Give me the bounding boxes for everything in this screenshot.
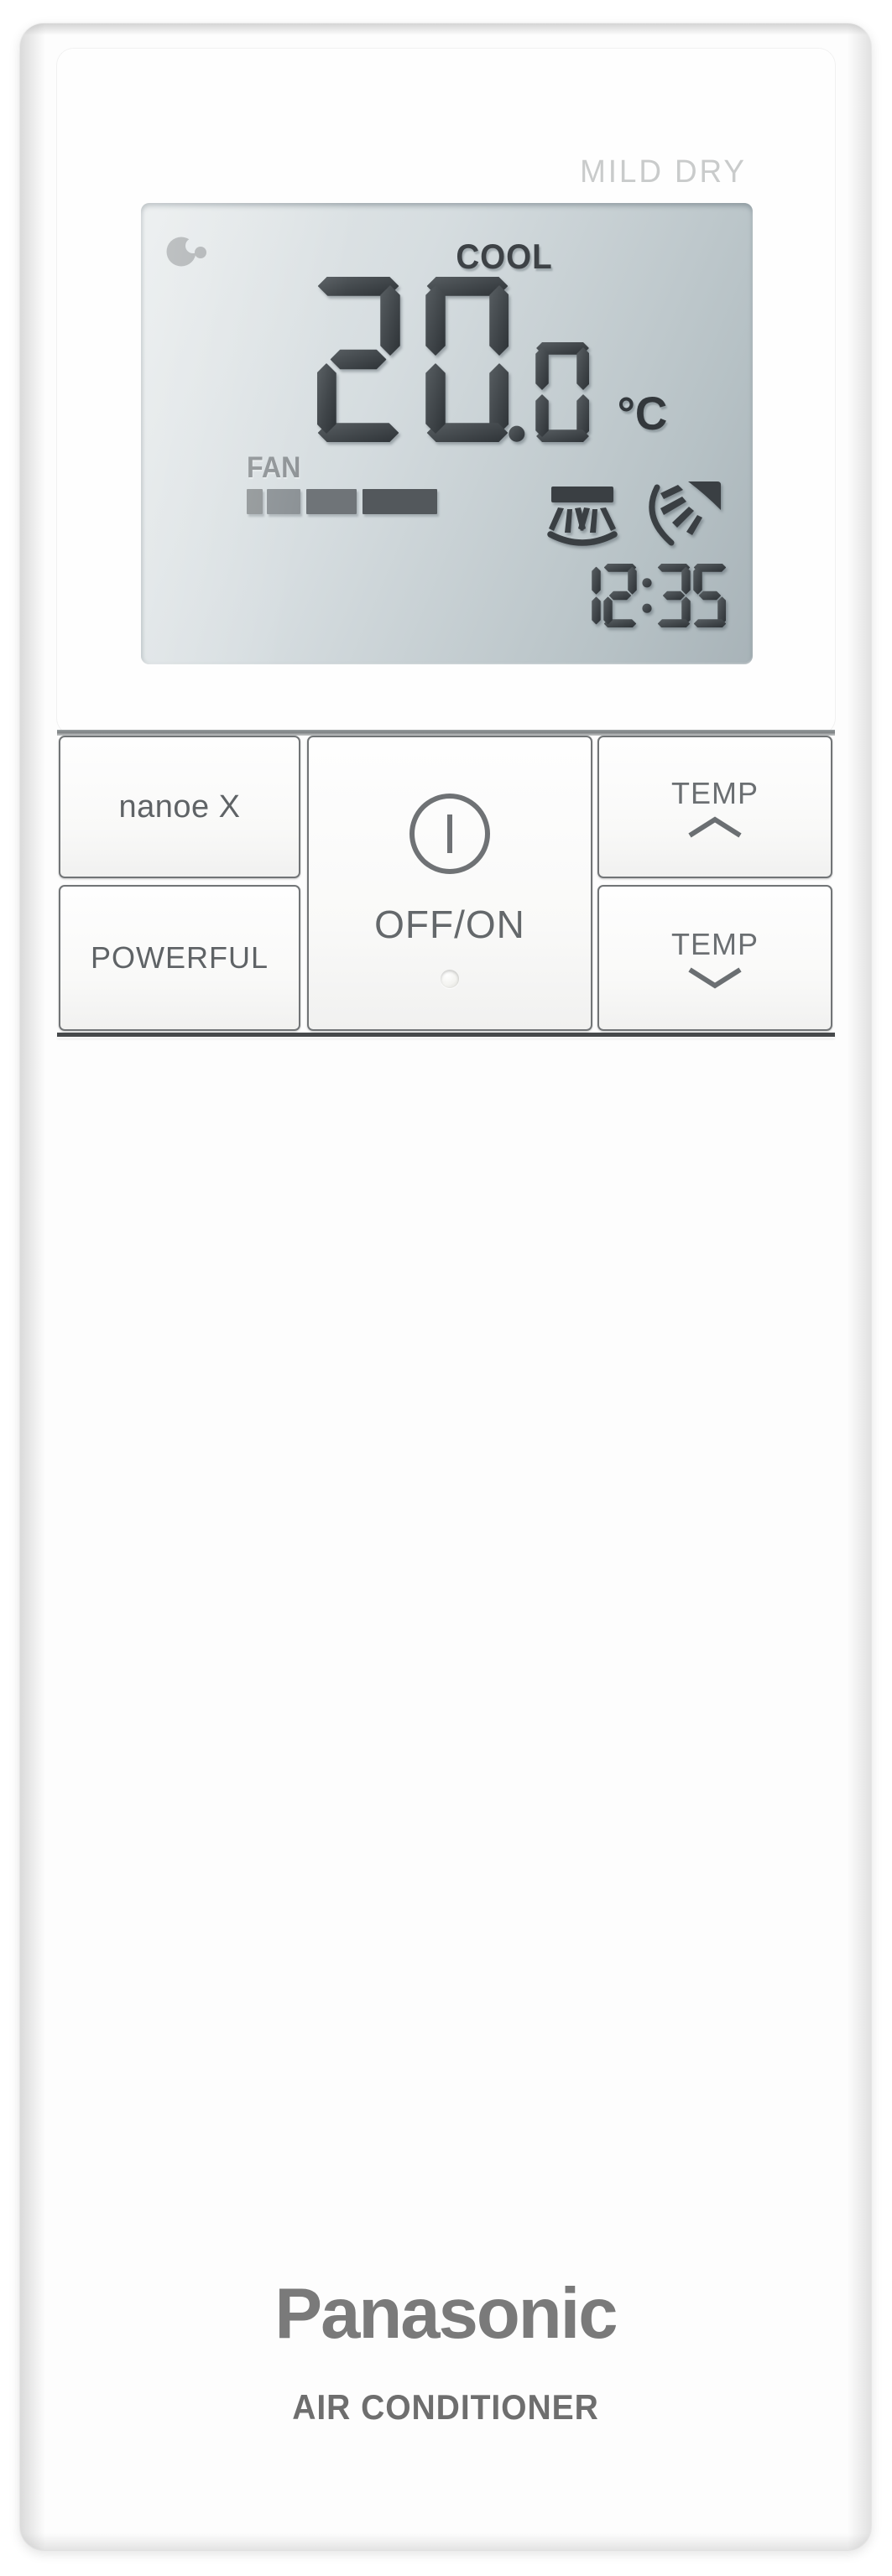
panel-seam-top [57, 730, 835, 736]
chevron-up-icon [687, 816, 743, 838]
clock-display [568, 564, 726, 627]
fan-bar-segment [247, 489, 263, 514]
product-name-label: AIR CONDITIONER [50, 2387, 841, 2428]
airswing-vertical-icon [544, 485, 621, 552]
temp-up-label: TEMP [671, 776, 759, 811]
off-on-label: OFF/ON [309, 902, 591, 947]
remote-photo-canvas: MILD DRY COOL °C FAN [0, 0, 892, 2576]
nanoe-x-button-label: nanoe X [118, 789, 240, 825]
nanoe-x-button[interactable]: nanoe X [59, 736, 300, 878]
remote-body: MILD DRY COOL °C FAN [20, 23, 871, 2550]
mode-label: COOL [456, 237, 552, 277]
fan-bar-segment [267, 489, 300, 514]
airswing-horizontal-icon [644, 480, 723, 550]
mild-dry-label: MILD DRY [580, 154, 747, 190]
chevron-down-icon [687, 967, 743, 989]
fan-bar-segment [363, 489, 437, 514]
fan-speed-bar [247, 489, 437, 514]
temp-down-button[interactable]: TEMP [597, 885, 832, 1031]
temp-down-label: TEMP [671, 927, 759, 962]
nanoe-indicator-icon [164, 233, 208, 270]
power-icon [409, 794, 490, 874]
powerful-button-label: POWERFUL [91, 940, 269, 976]
temperature-integer-display [317, 277, 509, 442]
temperature-decimal-display [509, 342, 589, 442]
power-led-indicator [441, 970, 459, 988]
temp-up-button[interactable]: TEMP [597, 736, 832, 878]
powerful-button[interactable]: POWERFUL [59, 885, 300, 1031]
panel-seam-bottom [57, 1033, 835, 1037]
off-on-power-button[interactable]: OFF/ON [307, 736, 592, 1031]
fan-bar-segment [306, 489, 357, 514]
temperature-unit-label: °C [618, 386, 668, 440]
brand-logo: Panasonic [20, 2273, 871, 2355]
lcd-screen: COOL °C FAN [141, 203, 753, 664]
fan-label: FAN [247, 451, 300, 485]
